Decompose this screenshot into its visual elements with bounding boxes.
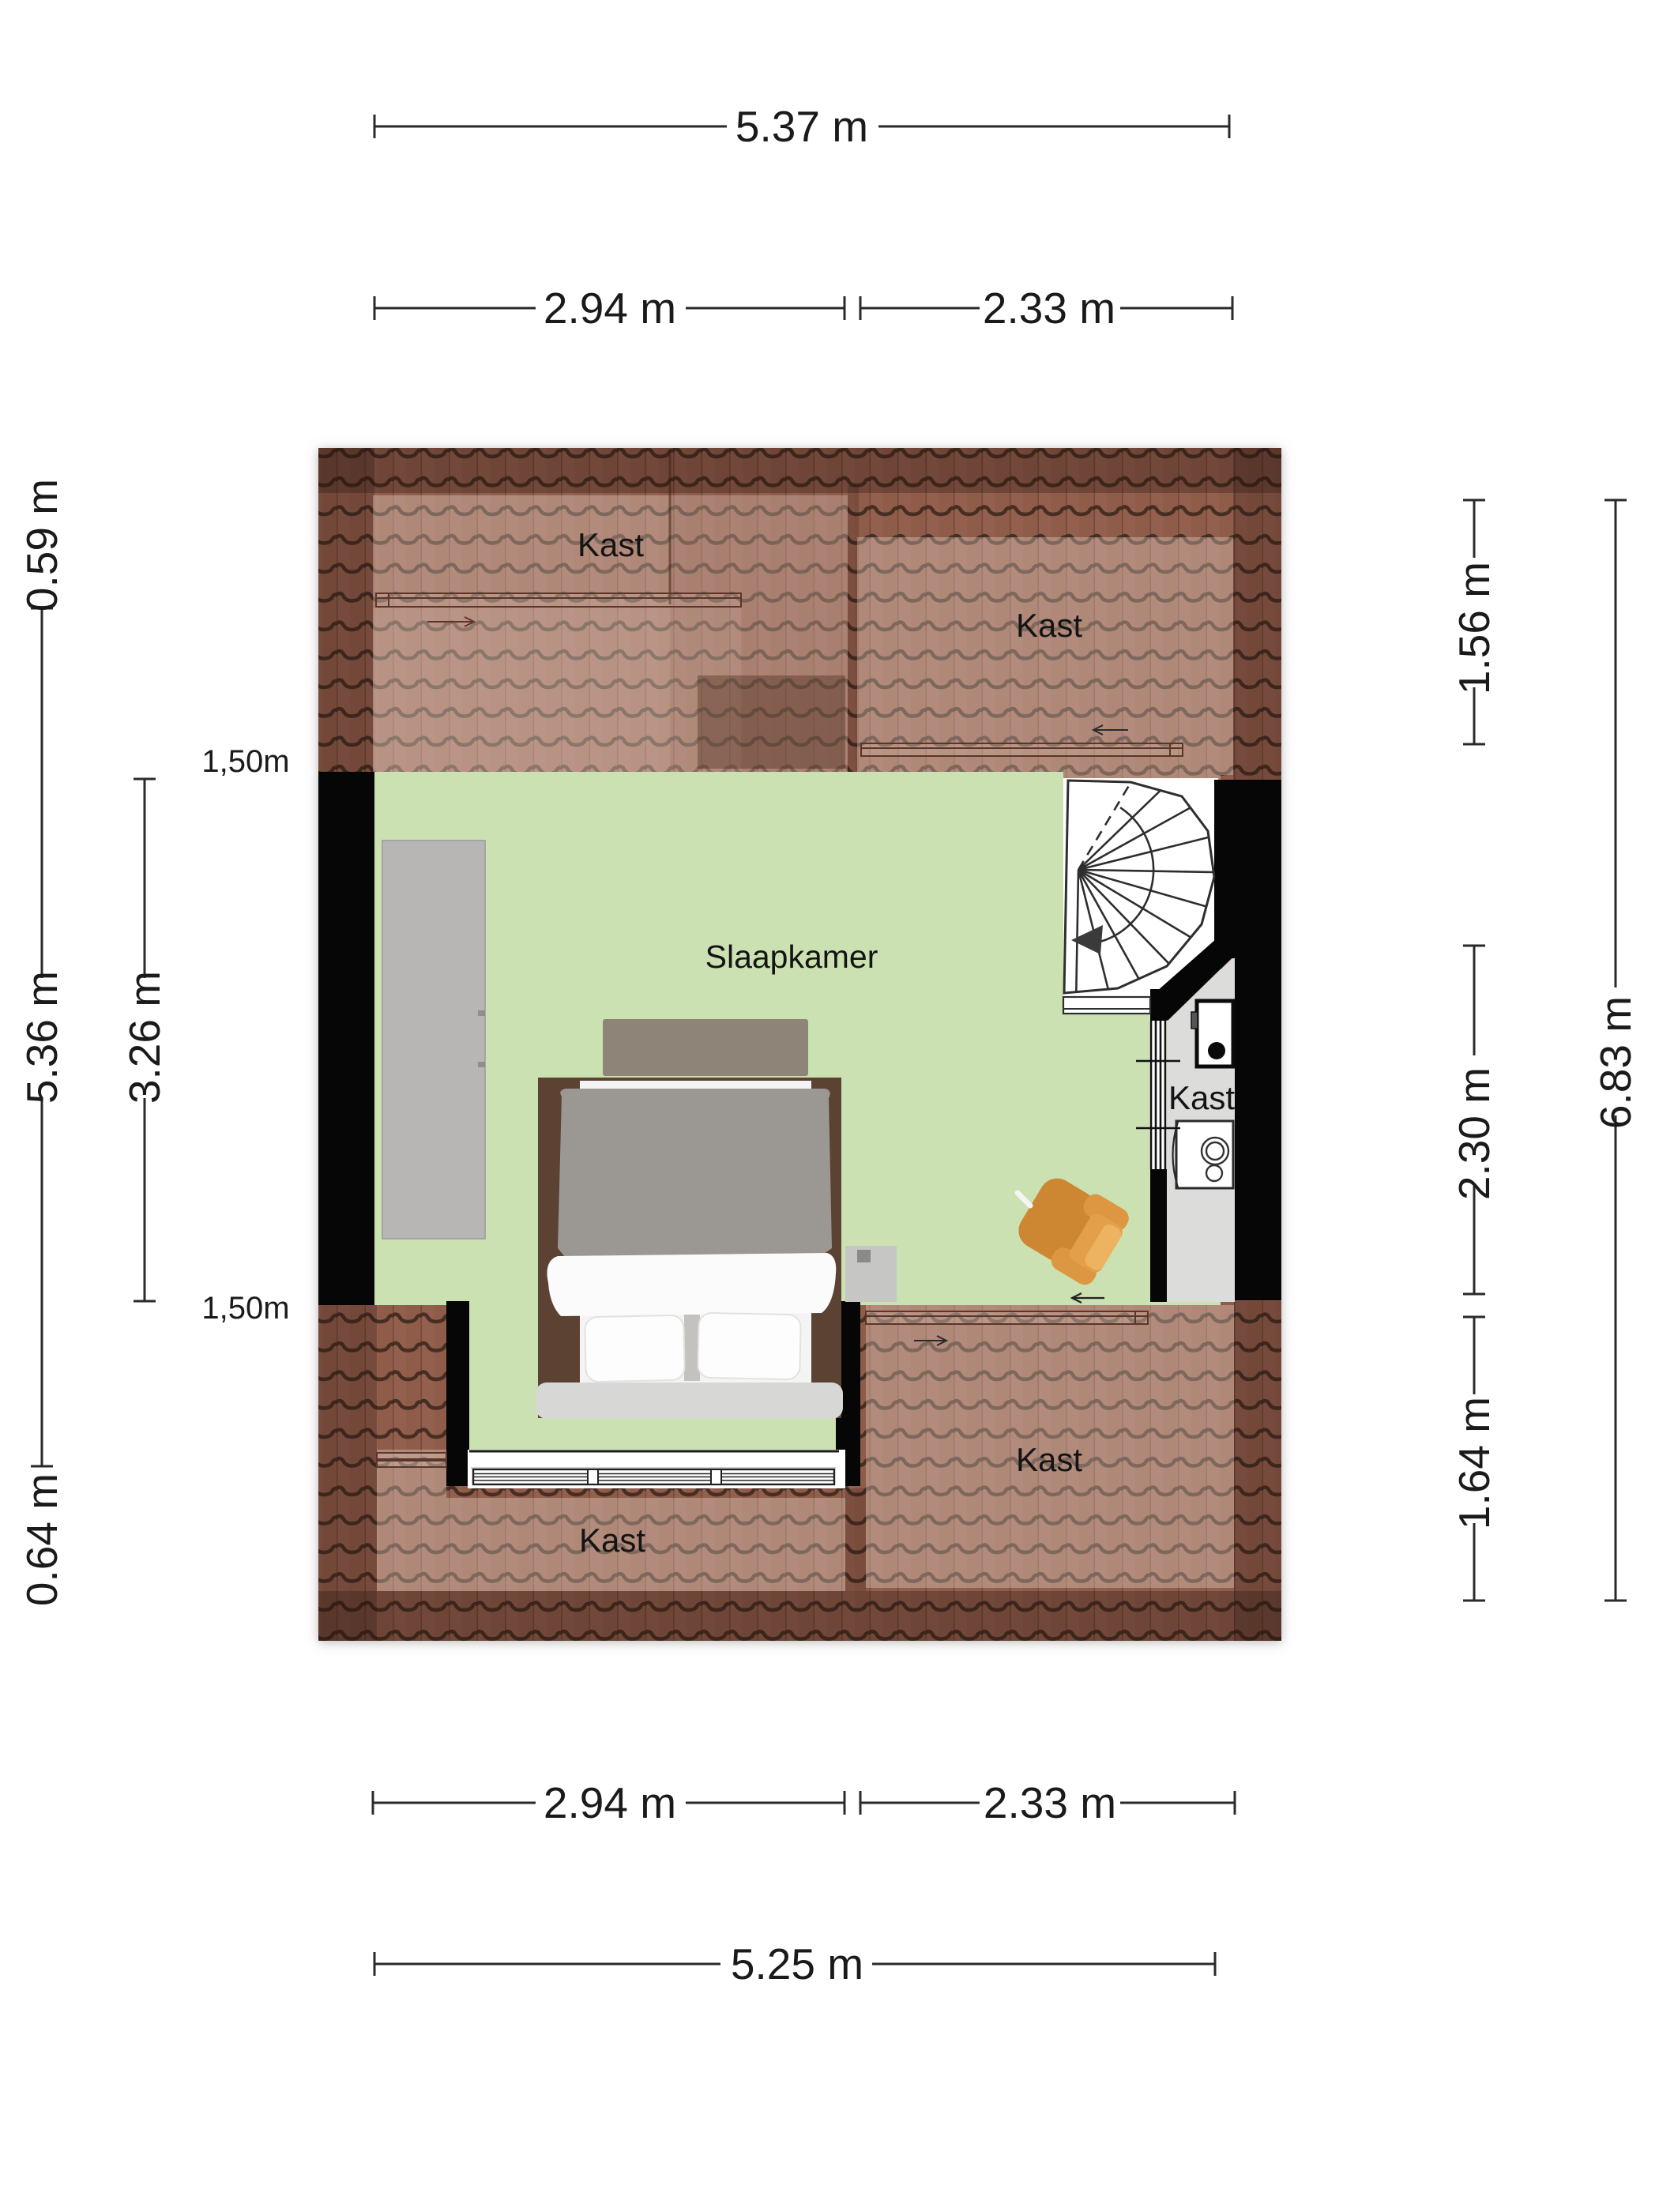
svg-text:Kast: Kast bbox=[579, 1522, 645, 1559]
svg-text:5.25 m: 5.25 m bbox=[731, 1939, 863, 1988]
svg-text:1.56 m: 1.56 m bbox=[1450, 562, 1499, 694]
svg-text:Slaapkamer: Slaapkamer bbox=[705, 939, 878, 975]
svg-text:2.30 m: 2.30 m bbox=[1450, 1067, 1499, 1200]
svg-text:Kast: Kast bbox=[577, 526, 644, 563]
svg-text:2.94 m: 2.94 m bbox=[544, 1778, 676, 1827]
svg-text:1.64 m: 1.64 m bbox=[1450, 1397, 1499, 1529]
svg-text:2.33 m: 2.33 m bbox=[984, 1778, 1116, 1827]
svg-text:1,50m: 1,50m bbox=[201, 744, 289, 779]
svg-text:0.64 m: 0.64 m bbox=[17, 1473, 66, 1606]
svg-text:2.94 m: 2.94 m bbox=[544, 284, 676, 333]
svg-text:Kast: Kast bbox=[1016, 1441, 1082, 1478]
svg-text:5.36 m: 5.36 m bbox=[17, 971, 66, 1104]
svg-text:5.37 m: 5.37 m bbox=[735, 102, 868, 151]
svg-text:Kast: Kast bbox=[1016, 607, 1082, 644]
svg-text:1,50m: 1,50m bbox=[201, 1291, 289, 1326]
svg-text:6.83 m: 6.83 m bbox=[1591, 996, 1640, 1129]
svg-text:0.59 m: 0.59 m bbox=[17, 479, 66, 611]
svg-text:3.26 m: 3.26 m bbox=[120, 971, 169, 1104]
svg-text:2.33 m: 2.33 m bbox=[983, 284, 1115, 333]
svg-text:Kast: Kast bbox=[1168, 1079, 1235, 1116]
